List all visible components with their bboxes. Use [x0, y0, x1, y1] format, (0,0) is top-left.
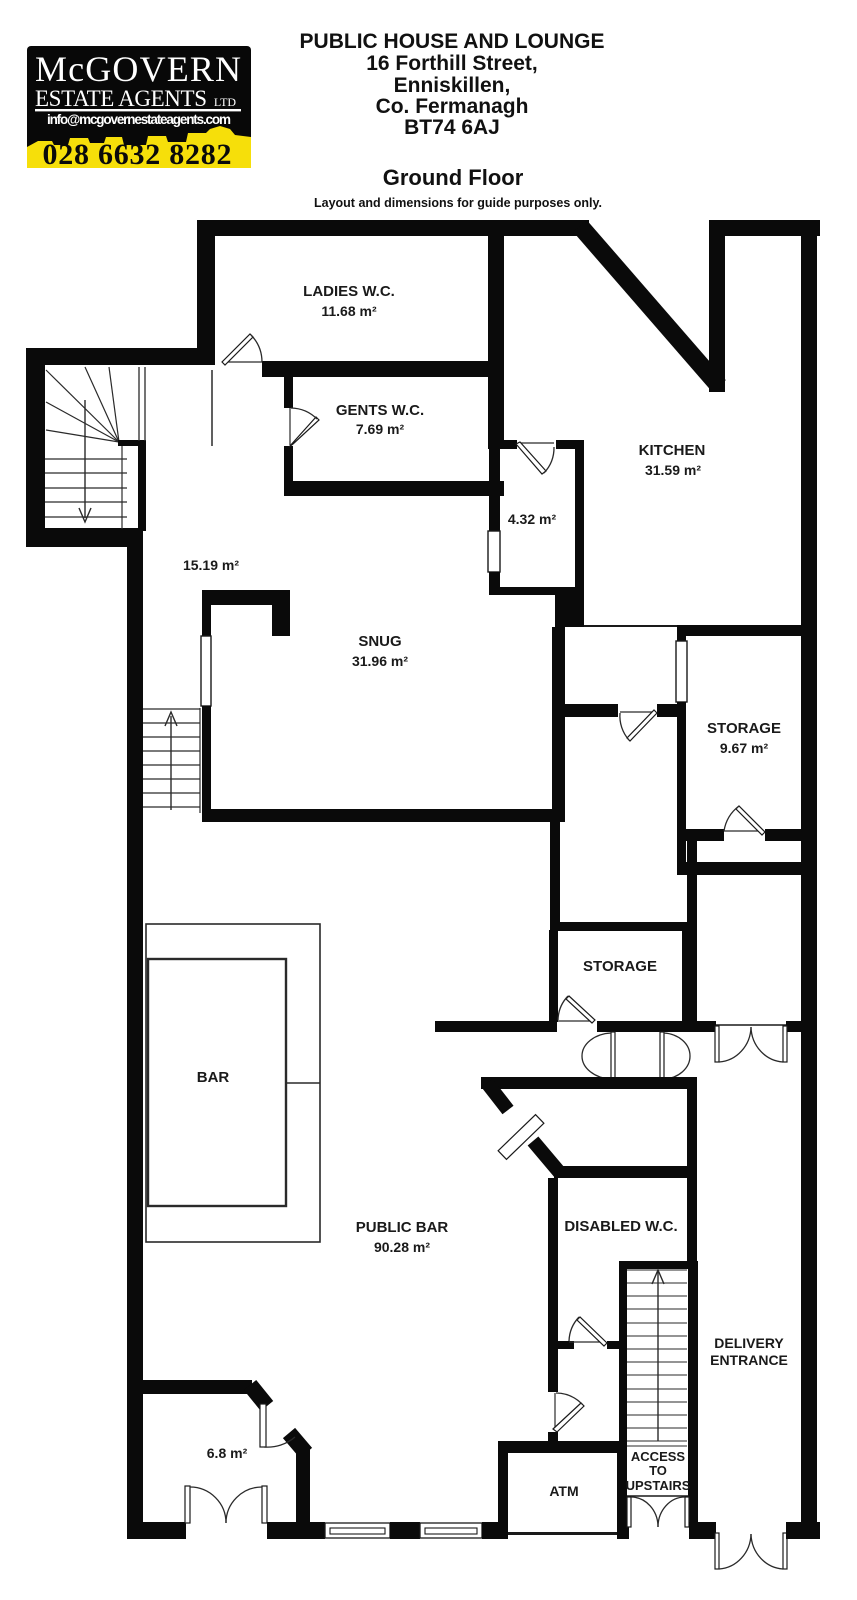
svg-text:Enniskillen,: Enniskillen, — [394, 74, 511, 97]
svg-text:DISABLED W.C.: DISABLED W.C. — [564, 1218, 677, 1235]
svg-text:9.67 m²: 9.67 m² — [720, 740, 769, 756]
svg-text:PUBLIC BAR: PUBLIC BAR — [356, 1219, 449, 1236]
svg-text:DELIVERY: DELIVERY — [714, 1335, 784, 1351]
svg-text:LADIES W.C.: LADIES W.C. — [303, 283, 395, 300]
svg-text:UPSTAIRS: UPSTAIRS — [626, 1478, 691, 1493]
svg-text:LTD: LTD — [214, 95, 237, 109]
svg-text:11.68 m²: 11.68 m² — [321, 303, 377, 319]
svg-text:ATM: ATM — [549, 1483, 578, 1499]
svg-text:028 6632 8282: 028 6632 8282 — [43, 138, 232, 171]
svg-text:31.96 m²: 31.96 m² — [352, 653, 408, 669]
svg-text:GENTS W.C.: GENTS W.C. — [336, 402, 424, 419]
svg-text:BAR: BAR — [197, 1069, 230, 1086]
svg-text:SNUG: SNUG — [358, 633, 401, 650]
svg-text:Co. Fermanagh: Co. Fermanagh — [376, 95, 529, 118]
svg-text:16 Forthill Street,: 16 Forthill Street, — [366, 52, 538, 75]
svg-text:ENTRANCE: ENTRANCE — [710, 1352, 788, 1368]
svg-text:6.8 m²: 6.8 m² — [207, 1445, 248, 1461]
svg-text:7.69 m²: 7.69 m² — [356, 421, 405, 437]
svg-text:4.32 m²: 4.32 m² — [508, 511, 557, 527]
svg-text:ESTATE AGENTS: ESTATE AGENTS — [35, 86, 207, 111]
svg-text:PUBLIC HOUSE AND LOUNGE: PUBLIC HOUSE AND LOUNGE — [300, 30, 605, 53]
svg-text:Layout and dimensions for guid: Layout and dimensions for guide purposes… — [314, 196, 602, 210]
svg-text:KITCHEN: KITCHEN — [639, 442, 706, 459]
svg-text:Ground Floor: Ground Floor — [383, 165, 524, 190]
svg-text:McGOVERN: McGOVERN — [35, 49, 241, 89]
svg-text:BT74 6AJ: BT74 6AJ — [404, 116, 500, 139]
svg-text:31.59 m²: 31.59 m² — [645, 462, 701, 478]
svg-text:TO: TO — [649, 1463, 667, 1478]
svg-text:STORAGE: STORAGE — [583, 958, 657, 975]
svg-text:info@mcgovernestateagents.com: info@mcgovernestateagents.com — [47, 112, 231, 127]
svg-text:15.19 m²: 15.19 m² — [183, 557, 239, 573]
svg-text:STORAGE: STORAGE — [707, 720, 781, 737]
svg-text:90.28 m²: 90.28 m² — [374, 1239, 430, 1255]
svg-text:ACCESS: ACCESS — [631, 1449, 686, 1464]
